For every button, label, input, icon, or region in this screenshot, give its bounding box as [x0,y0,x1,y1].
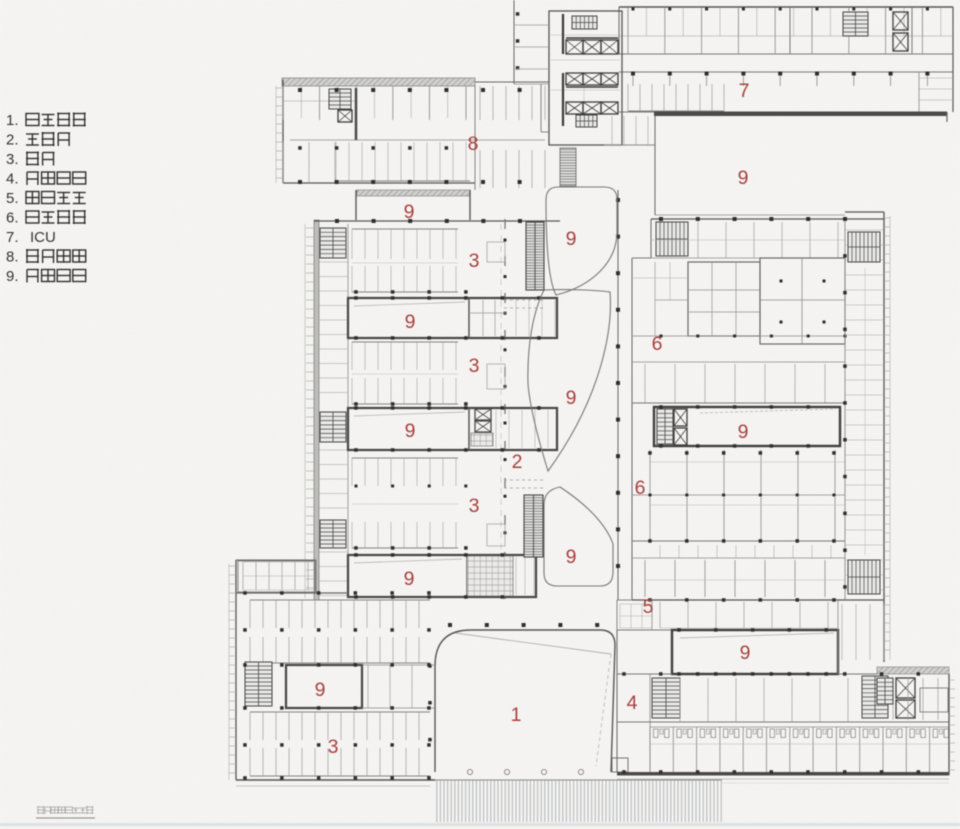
svg-text:6.: 6. [6,210,19,227]
svg-text:1: 1 [511,704,522,726]
svg-text:7.: 7. [6,229,19,246]
svg-text:6: 6 [652,333,663,355]
svg-text:6: 6 [635,477,646,499]
svg-text:9: 9 [404,568,415,590]
svg-text:9: 9 [315,679,326,701]
svg-text:9: 9 [566,228,577,250]
svg-text:ICU: ICU [30,229,56,246]
svg-text:9: 9 [740,642,751,664]
svg-text:5.: 5. [6,190,19,207]
svg-text:4.: 4. [6,171,19,188]
svg-text:3: 3 [469,355,480,377]
svg-text:9: 9 [405,420,416,442]
svg-text:9: 9 [405,311,416,333]
svg-text:3: 3 [469,495,480,517]
svg-text:4: 4 [627,692,638,714]
svg-text:3: 3 [469,250,480,272]
svg-text:2.: 2. [6,132,19,149]
svg-text:9: 9 [738,167,749,189]
svg-text:3: 3 [328,736,339,758]
svg-text:9: 9 [404,201,415,223]
svg-text:9: 9 [566,546,577,568]
svg-text:8: 8 [468,133,479,155]
svg-text:5: 5 [643,596,654,618]
svg-text:3.: 3. [6,151,19,168]
svg-text:1.: 1. [6,112,19,129]
svg-text:9: 9 [738,421,749,443]
svg-text:9: 9 [566,387,577,409]
svg-text:7: 7 [739,80,750,102]
svg-text:2: 2 [512,451,523,473]
svg-text:8.: 8. [6,249,19,266]
svg-text:9.: 9. [6,268,19,285]
